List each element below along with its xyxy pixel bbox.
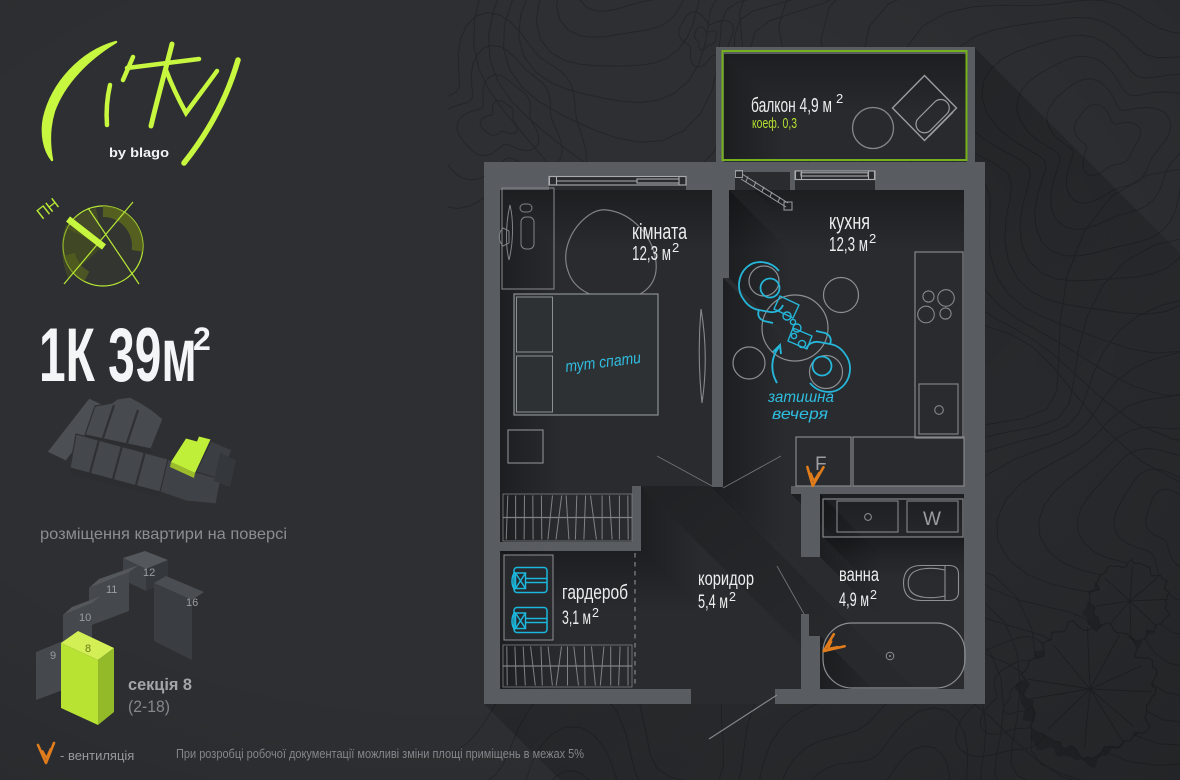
svg-text:ванна: ванна bbox=[839, 565, 879, 586]
svg-text:кухня: кухня bbox=[829, 209, 870, 234]
svg-text:12,3 м: 12,3 м bbox=[829, 234, 868, 256]
svg-text:При розробці робочої документа: При розробці робочої документації можлив… bbox=[176, 746, 584, 761]
svg-text:8: 8 bbox=[85, 643, 91, 655]
svg-text:(2-18): (2-18) bbox=[128, 697, 170, 716]
svg-text:1К 39м: 1К 39м bbox=[39, 314, 197, 398]
svg-text:2: 2 bbox=[729, 590, 736, 604]
svg-text:балкон 4,9 м: балкон 4,9 м bbox=[751, 94, 832, 117]
svg-text:12,3 м: 12,3 м bbox=[632, 243, 671, 265]
svg-text:гардероб: гардероб bbox=[562, 582, 628, 604]
svg-text:2: 2 bbox=[836, 91, 843, 106]
svg-text:2: 2 bbox=[193, 321, 211, 357]
svg-text:вечеря: вечеря bbox=[772, 406, 828, 423]
svg-text:9: 9 bbox=[50, 650, 56, 662]
svg-text:- вентиляція: - вентиляція bbox=[60, 748, 134, 763]
svg-text:5,4 м: 5,4 м bbox=[698, 592, 728, 613]
svg-text:W: W bbox=[923, 509, 941, 530]
svg-text:11: 11 bbox=[106, 584, 117, 596]
svg-text:коеф. 0,3: коеф. 0,3 bbox=[752, 116, 797, 132]
svg-text:16: 16 bbox=[186, 597, 198, 609]
svg-text:затишна: затишна bbox=[767, 389, 834, 406]
svg-text:12: 12 bbox=[143, 567, 155, 579]
svg-text:2: 2 bbox=[869, 231, 876, 246]
svg-text:2: 2 bbox=[870, 588, 877, 602]
svg-text:секція 8: секція 8 bbox=[128, 675, 192, 694]
svg-text:10: 10 bbox=[79, 612, 91, 624]
svg-text:2: 2 bbox=[592, 606, 599, 620]
svg-text:2: 2 bbox=[672, 240, 679, 255]
svg-text:4,9 м: 4,9 м bbox=[839, 590, 869, 611]
svg-text:by blago: by blago bbox=[109, 145, 169, 160]
svg-text:коридор: коридор bbox=[698, 569, 754, 590]
svg-text:розміщення квартири на поверсі: розміщення квартири на поверсі bbox=[40, 526, 287, 543]
svg-text:3,1 м: 3,1 м bbox=[562, 608, 591, 629]
